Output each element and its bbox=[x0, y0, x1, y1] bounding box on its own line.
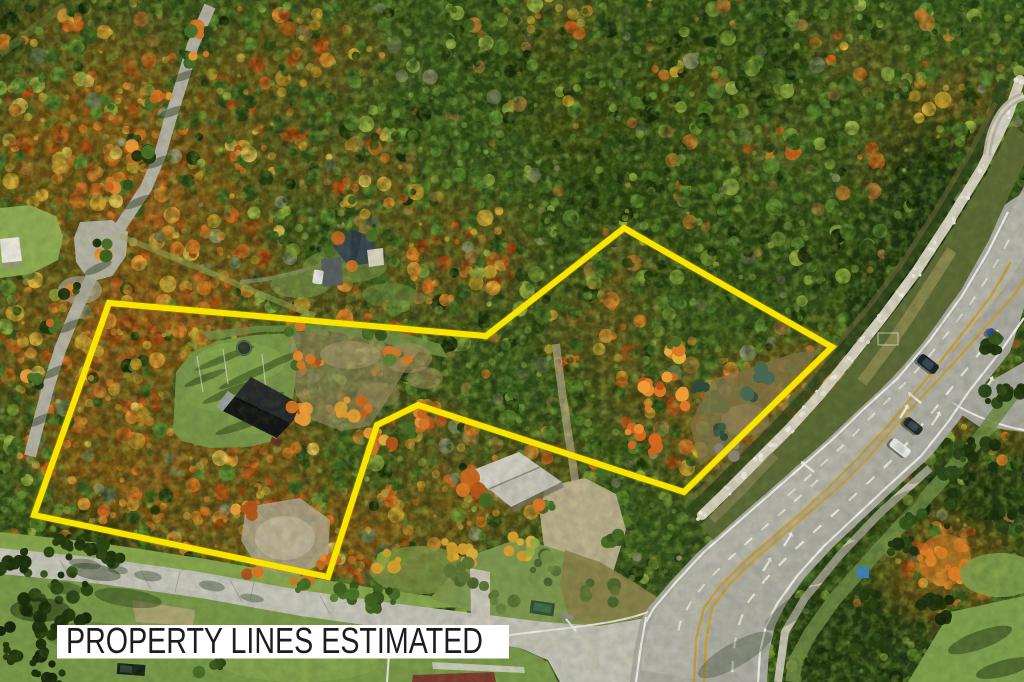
svg-text:PROPERTY LINES ESTIMATED: PROPERTY LINES ESTIMATED bbox=[66, 620, 483, 661]
